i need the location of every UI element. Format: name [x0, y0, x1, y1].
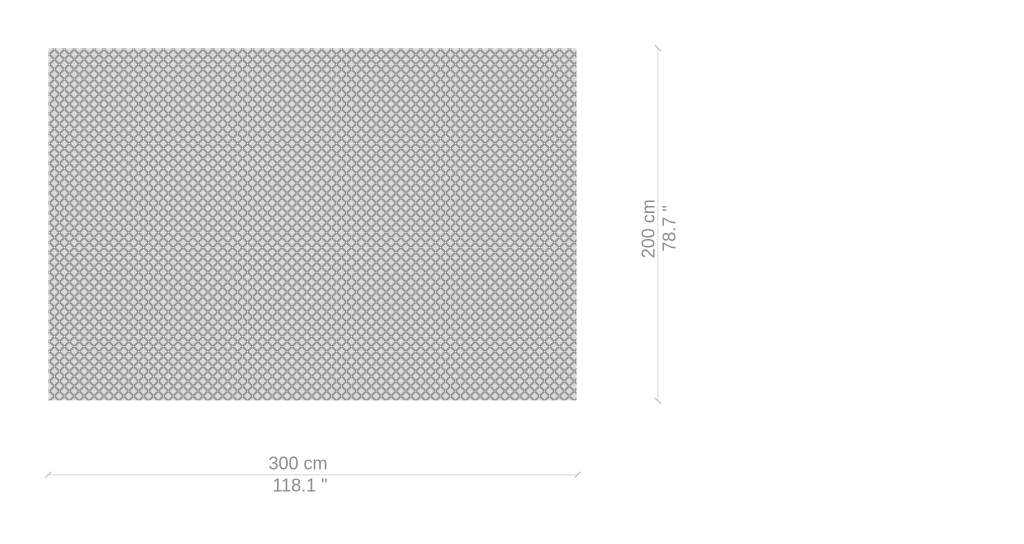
svg-text:78.7 ": 78.7 ": [660, 205, 680, 251]
svg-text:200 cm: 200 cm: [638, 199, 658, 258]
svg-text:118.1 ": 118.1 ": [272, 476, 327, 496]
svg-text:300 cm: 300 cm: [268, 454, 327, 474]
